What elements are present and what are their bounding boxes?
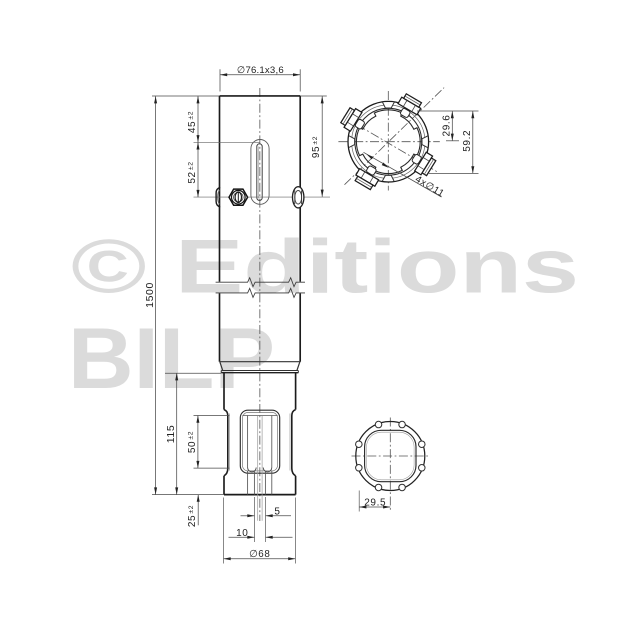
svg-text:59.2: 59.2 (462, 130, 473, 152)
svg-text:29.6: 29.6 (441, 115, 452, 137)
svg-text:115: 115 (165, 425, 177, 444)
svg-text:BILP: BILP (68, 311, 275, 407)
svg-text:10: 10 (236, 528, 248, 539)
svg-text:∅68: ∅68 (249, 549, 270, 560)
svg-text:29.5: 29.5 (364, 498, 386, 509)
svg-text:∅76.1x3,6: ∅76.1x3,6 (237, 65, 284, 76)
svg-text:5: 5 (274, 507, 280, 518)
svg-text:1500: 1500 (144, 282, 156, 308)
